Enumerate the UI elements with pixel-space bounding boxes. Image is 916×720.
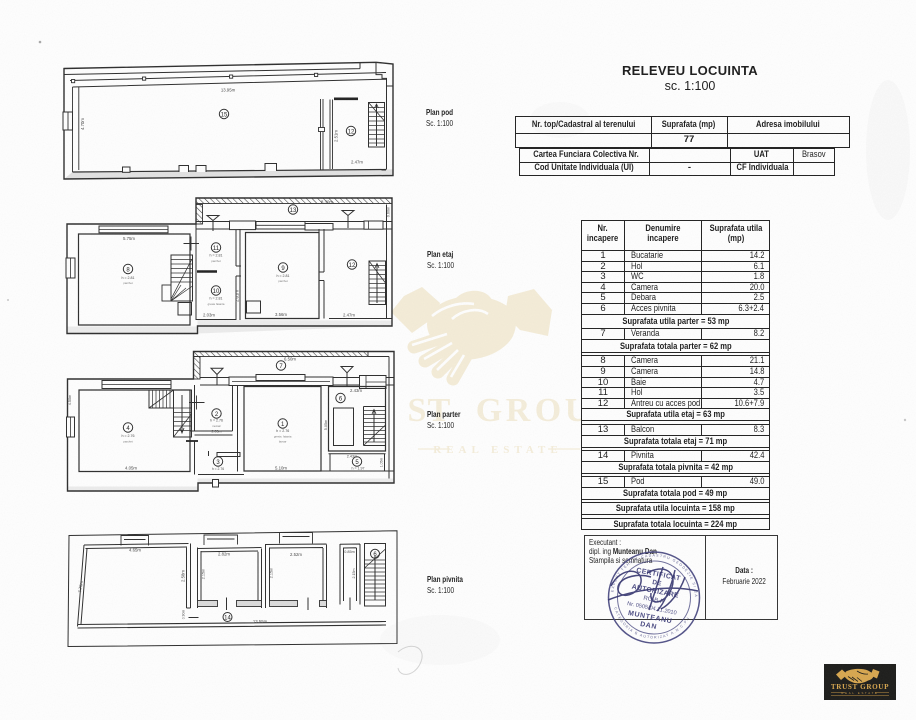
svg-text:12: 12 [348,129,355,135]
svg-text:2.47m: 2.47m [351,160,363,165]
svg-text:7.75m: 7.75m [77,580,84,593]
svg-text:4.05m: 4.05m [125,466,137,471]
svg-text:h = 1.97: h = 1.97 [351,467,364,471]
svg-text:parchet: parchet [123,281,133,285]
svg-text:13: 13 [290,208,297,214]
svg-text:4.65m: 4.65m [129,548,141,553]
svg-text:8.30m: 8.30m [321,199,333,204]
svg-text:parchet: parchet [211,259,221,263]
svg-text:2.01m: 2.01m [235,290,240,302]
svg-text:2.58m: 2.58m [181,570,186,582]
svg-text:gresie, faianta: gresie, faianta [274,435,292,439]
svg-text:2.03m: 2.03m [212,430,222,434]
svg-text:7: 7 [279,364,283,370]
svg-text:0.90m: 0.90m [182,610,186,620]
svg-text:2.03m: 2.03m [203,313,215,318]
svg-text:h = 2.76: h = 2.76 [210,419,223,423]
svg-text:h = 2.81: h = 2.81 [276,274,289,278]
svg-text:3.56m: 3.56m [275,312,287,317]
svg-text:5.10m: 5.10m [275,466,287,471]
svg-text:2.43m: 2.43m [347,454,358,458]
svg-text:5.75m: 5.75m [123,236,135,241]
svg-text:2.52m: 2.52m [290,552,302,557]
svg-text:5: 5 [355,460,359,466]
svg-text:6: 6 [339,396,343,402]
svg-text:h = 2.76: h = 2.76 [276,429,289,433]
svg-text:13.55m: 13.55m [253,619,268,624]
svg-text:2: 2 [215,412,219,418]
svg-text:4.50m: 4.50m [68,395,72,406]
svg-text:6.50m: 6.50m [284,357,296,362]
svg-text:1.05m: 1.05m [380,458,384,468]
svg-text:8: 8 [126,267,130,273]
svg-text:h = 2.76: h = 2.76 [212,467,224,471]
svg-text:TRUST GROUP: TRUST GROUP [831,683,889,691]
svg-text:2.47m: 2.47m [343,313,355,318]
svg-text:DAN: DAN [639,621,657,631]
svg-text:14: 14 [224,615,231,621]
svg-text:15: 15 [221,112,228,118]
svg-text:9: 9 [281,266,285,272]
svg-text:0.60m: 0.60m [387,207,391,218]
svg-text:1: 1 [281,422,285,428]
svg-text:parchet: parchet [123,440,133,444]
svg-text:2.43m: 2.43m [350,388,362,393]
svg-text:4.70m: 4.70m [80,118,85,130]
svg-text:2.15m: 2.15m [202,569,206,580]
svg-text:12: 12 [349,263,356,269]
svg-text:h = 2.81: h = 2.81 [209,297,222,301]
svg-text:mozaic: mozaic [212,424,221,428]
svg-text:2.82m: 2.82m [218,552,230,557]
svg-text:h = 2.76: h = 2.76 [121,434,134,438]
svg-text:lavoar: lavoar [279,440,287,444]
svg-text:gresie faianta: gresie faianta [208,302,225,306]
svg-text:10: 10 [213,289,220,295]
svg-text:2.15m: 2.15m [270,568,274,579]
svg-text:h = 2.81: h = 2.81 [121,276,134,280]
svg-text:REAL ESTATE: REAL ESTATE [841,691,878,695]
svg-text:0.85m: 0.85m [344,550,355,554]
svg-text:parchet: parchet [278,279,288,283]
svg-text:4: 4 [126,426,130,432]
svg-text:5.05m: 5.05m [324,420,328,431]
svg-text:h = 2.81: h = 2.81 [209,254,222,258]
svg-text:3: 3 [216,460,220,466]
svg-text:2.51m: 2.51m [334,130,339,142]
svg-text:13.95m: 13.95m [221,88,236,93]
svg-text:2.15m: 2.15m [352,569,356,579]
svg-text:11: 11 [213,246,220,252]
